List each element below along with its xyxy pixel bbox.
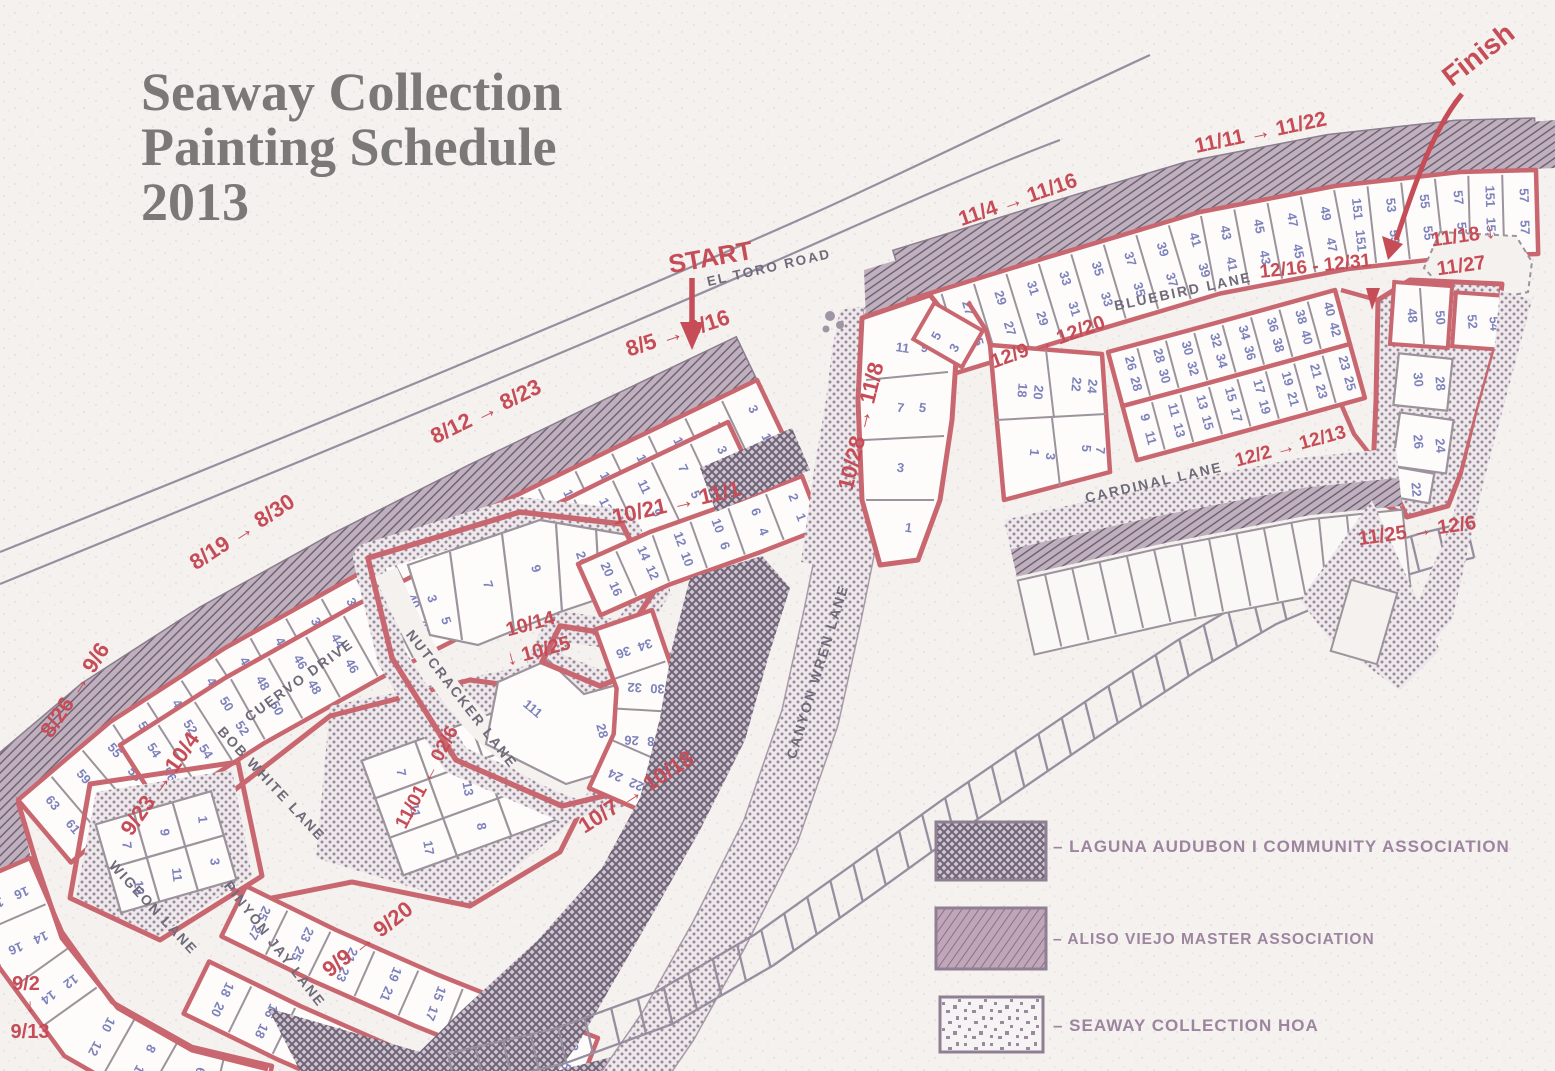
svg-text:22: 22 (1408, 482, 1424, 498)
svg-text:3: 3 (207, 857, 223, 866)
svg-text:50: 50 (1432, 310, 1448, 326)
svg-text:Seaway Collection: Seaway Collection (141, 62, 562, 122)
svg-text:57: 57 (1450, 190, 1466, 206)
svg-text:– LAGUNA AUDUBON I COMMUNITY A: – LAGUNA AUDUBON I COMMUNITY ASSOCIATION (1053, 837, 1510, 856)
svg-text:24: 24 (1432, 438, 1448, 454)
svg-text:45: 45 (1251, 218, 1268, 235)
svg-text:11: 11 (169, 867, 185, 882)
svg-text:9/2: 9/2 (12, 973, 40, 995)
svg-text:28: 28 (1432, 376, 1448, 392)
svg-text:7: 7 (119, 841, 135, 850)
svg-text:7: 7 (1093, 446, 1109, 455)
svg-text:52: 52 (1464, 314, 1480, 330)
svg-text:11: 11 (895, 339, 911, 356)
svg-text:26: 26 (624, 733, 639, 749)
svg-text:17: 17 (420, 839, 437, 856)
svg-text:22: 22 (1068, 377, 1084, 393)
svg-text:Painting Schedule: Painting Schedule (141, 117, 557, 177)
svg-text:57: 57 (1517, 220, 1532, 235)
svg-text:55: 55 (1417, 193, 1433, 209)
svg-text:151: 151 (1482, 185, 1498, 207)
svg-text:47: 47 (1323, 236, 1340, 253)
svg-text:47: 47 (1284, 211, 1301, 228)
svg-text:– ALISO VIEJO MASTER ASSOCIATI: – ALISO VIEJO MASTER ASSOCIATION (1053, 931, 1375, 948)
svg-text:9: 9 (157, 828, 173, 837)
svg-text:26: 26 (1410, 434, 1426, 450)
svg-text:30: 30 (1410, 372, 1426, 388)
svg-text:41: 41 (1223, 255, 1240, 272)
svg-text:3: 3 (1043, 452, 1059, 461)
svg-text:53: 53 (1383, 197, 1399, 213)
svg-text:1: 1 (1027, 448, 1043, 457)
svg-text:5: 5 (1079, 444, 1095, 453)
svg-text:48: 48 (1404, 308, 1420, 324)
svg-text:43: 43 (1217, 224, 1234, 241)
svg-text:2013: 2013 (141, 172, 249, 232)
svg-text:20: 20 (1030, 385, 1046, 401)
svg-text:32: 32 (627, 680, 642, 696)
svg-text:57: 57 (1516, 188, 1531, 203)
svg-text:1: 1 (195, 815, 211, 824)
svg-text:18: 18 (1014, 383, 1030, 399)
svg-text:30: 30 (650, 681, 665, 697)
svg-text:151: 151 (1352, 229, 1369, 252)
svg-text:49: 49 (1317, 205, 1334, 222)
svg-text:24: 24 (1084, 379, 1100, 395)
svg-text:↓: ↓ (25, 996, 35, 1017)
svg-text:– SEAWAY COLLECTION HOA: – SEAWAY COLLECTION HOA (1053, 1016, 1319, 1035)
svg-text:151: 151 (1349, 197, 1366, 220)
svg-text:9/13: 9/13 (11, 1021, 50, 1043)
